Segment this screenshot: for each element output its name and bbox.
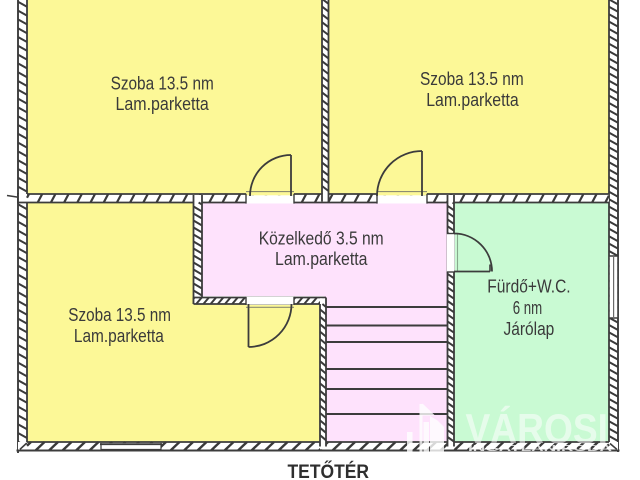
svg-text:Járólap: Járólap [504,319,555,339]
svg-text:Szoba 13.5 nm: Szoba 13.5 nm [420,69,524,89]
svg-text:Lam.parketta: Lam.parketta [116,94,210,114]
svg-text:Fürdő+W.C.: Fürdő+W.C. [487,277,570,297]
svg-text:Lam.parketta: Lam.parketta [426,90,519,110]
svg-text:Lam.parketta: Lam.parketta [74,326,165,346]
svg-text:Közelkedő 3.5 nm: Közelkedő 3.5 nm [259,229,384,249]
svg-text:TETŐTÉR: TETŐTÉR [288,460,370,480]
svg-text:Szoba 13.5 nm: Szoba 13.5 nm [68,305,171,325]
svg-text:Szoba 13.5 nm: Szoba 13.5 nm [111,74,214,94]
svg-text:6 nm: 6 nm [513,298,543,318]
svg-text:Lam.parketta: Lam.parketta [275,249,368,269]
svg-text:INGATLANIRODA: INGATLANIRODA [468,443,612,453]
